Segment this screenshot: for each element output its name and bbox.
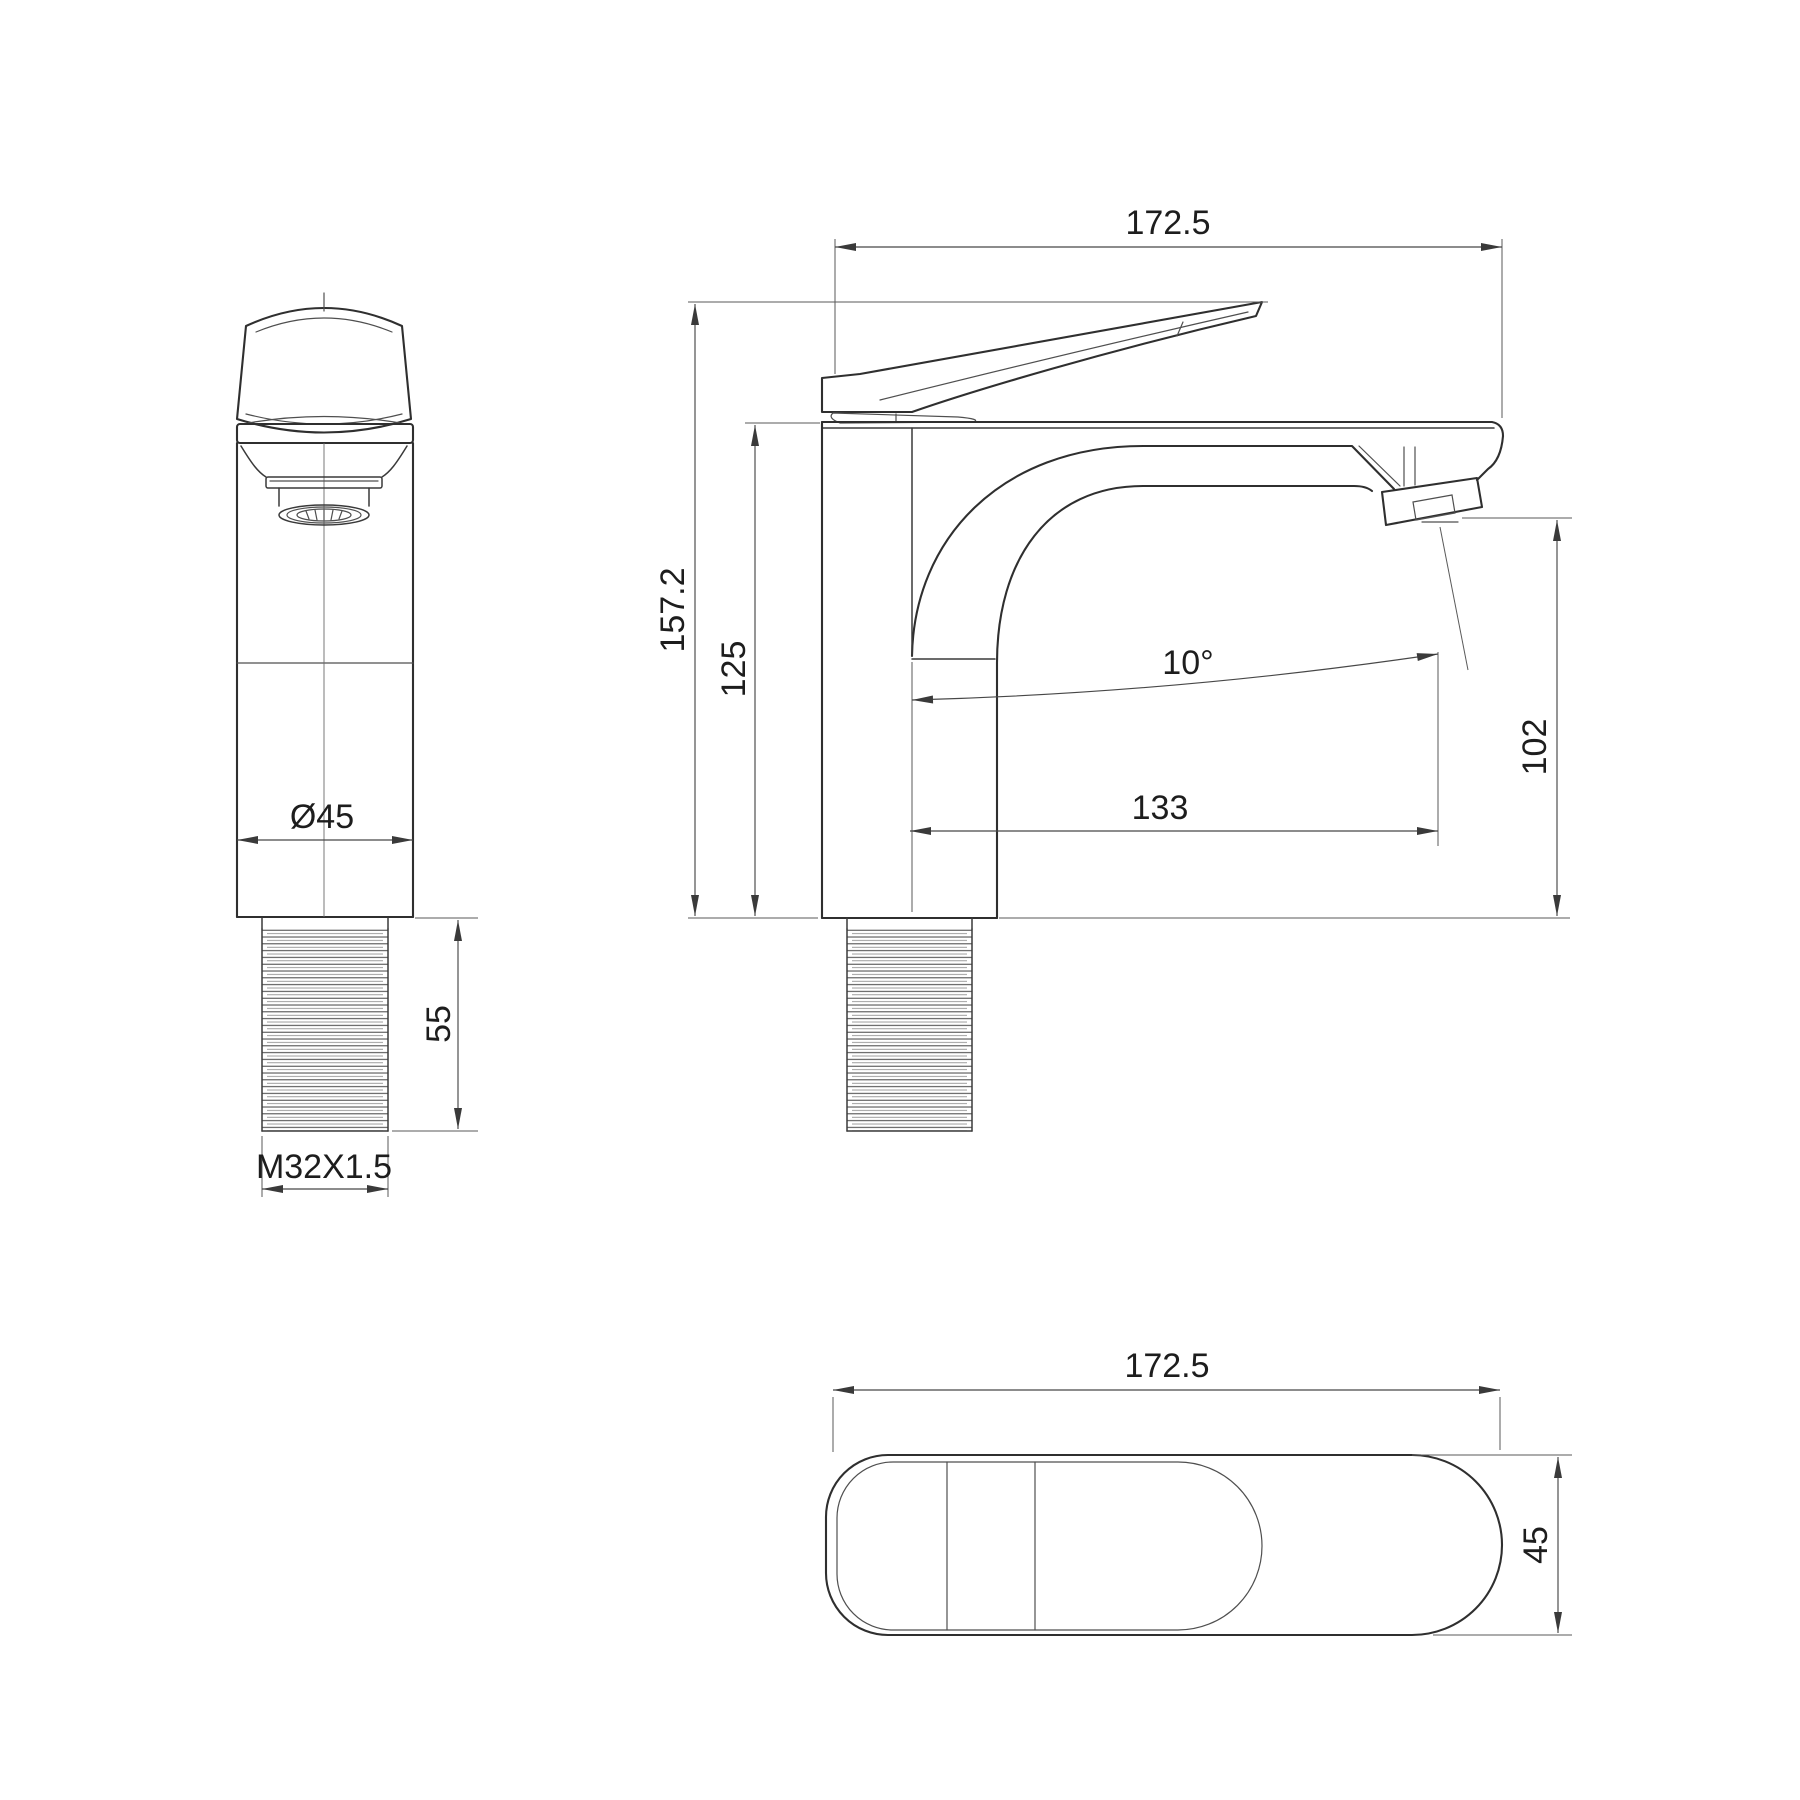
dim-thread-spec: M32X1.5 bbox=[256, 1136, 392, 1197]
aerator-mesh bbox=[306, 510, 342, 520]
body-spout-side bbox=[822, 422, 1415, 918]
dim-top-body-width: 45 bbox=[1412, 1455, 1572, 1635]
dim-label-front-diameter: Ø45 bbox=[290, 798, 354, 836]
dim-top-overall-length: 172.5 bbox=[833, 1347, 1500, 1452]
body-dome-front bbox=[248, 417, 400, 424]
dim-label-top-overall-length: 172.5 bbox=[1124, 1347, 1209, 1385]
shank-front bbox=[262, 918, 388, 1131]
top-view: 172.5 45 bbox=[826, 1347, 1572, 1635]
dim-label-side-body-height: 125 bbox=[715, 641, 753, 698]
faucet-drawing-svg: Ø45 55 M32X1.5 bbox=[0, 0, 1800, 1800]
dim-spout-angle: 10° bbox=[912, 644, 1438, 700]
outlet-side bbox=[1382, 478, 1482, 670]
dim-label-outlet-height: 102 bbox=[1516, 719, 1554, 776]
dim-side-body-height: 125 bbox=[715, 423, 820, 916]
dim-spout-reach: 133 bbox=[910, 652, 1438, 912]
handle-front bbox=[237, 293, 411, 433]
dim-label-side-overall-length: 172.5 bbox=[1125, 204, 1210, 242]
dim-label-side-overall-height: 157.2 bbox=[654, 567, 692, 652]
handle-outline-top bbox=[837, 1462, 1262, 1630]
front-view: Ø45 55 M32X1.5 bbox=[237, 293, 478, 1197]
body-outline-top bbox=[826, 1455, 1502, 1635]
dim-label-top-body-width: 45 bbox=[1517, 1526, 1555, 1564]
dim-outlet-height: 102 bbox=[999, 518, 1572, 918]
shank-side bbox=[847, 918, 972, 1131]
dim-shank-length: 55 bbox=[392, 918, 478, 1131]
side-view: 172.5 157.2 125 102 133 bbox=[654, 204, 1572, 1131]
dim-label-spout-reach: 133 bbox=[1132, 789, 1189, 827]
drawing-sheet: Ø45 55 M32X1.5 bbox=[0, 0, 1800, 1800]
water-stream-line bbox=[1440, 527, 1468, 670]
lever-side bbox=[822, 302, 1262, 423]
dim-front-diameter: Ø45 bbox=[237, 798, 413, 840]
dim-label-thread-spec: M32X1.5 bbox=[256, 1148, 392, 1186]
dim-label-shank-length: 55 bbox=[420, 1005, 458, 1043]
body-front bbox=[237, 443, 413, 917]
deck-side bbox=[822, 422, 1503, 480]
dim-label-spout-angle: 10° bbox=[1162, 644, 1213, 682]
